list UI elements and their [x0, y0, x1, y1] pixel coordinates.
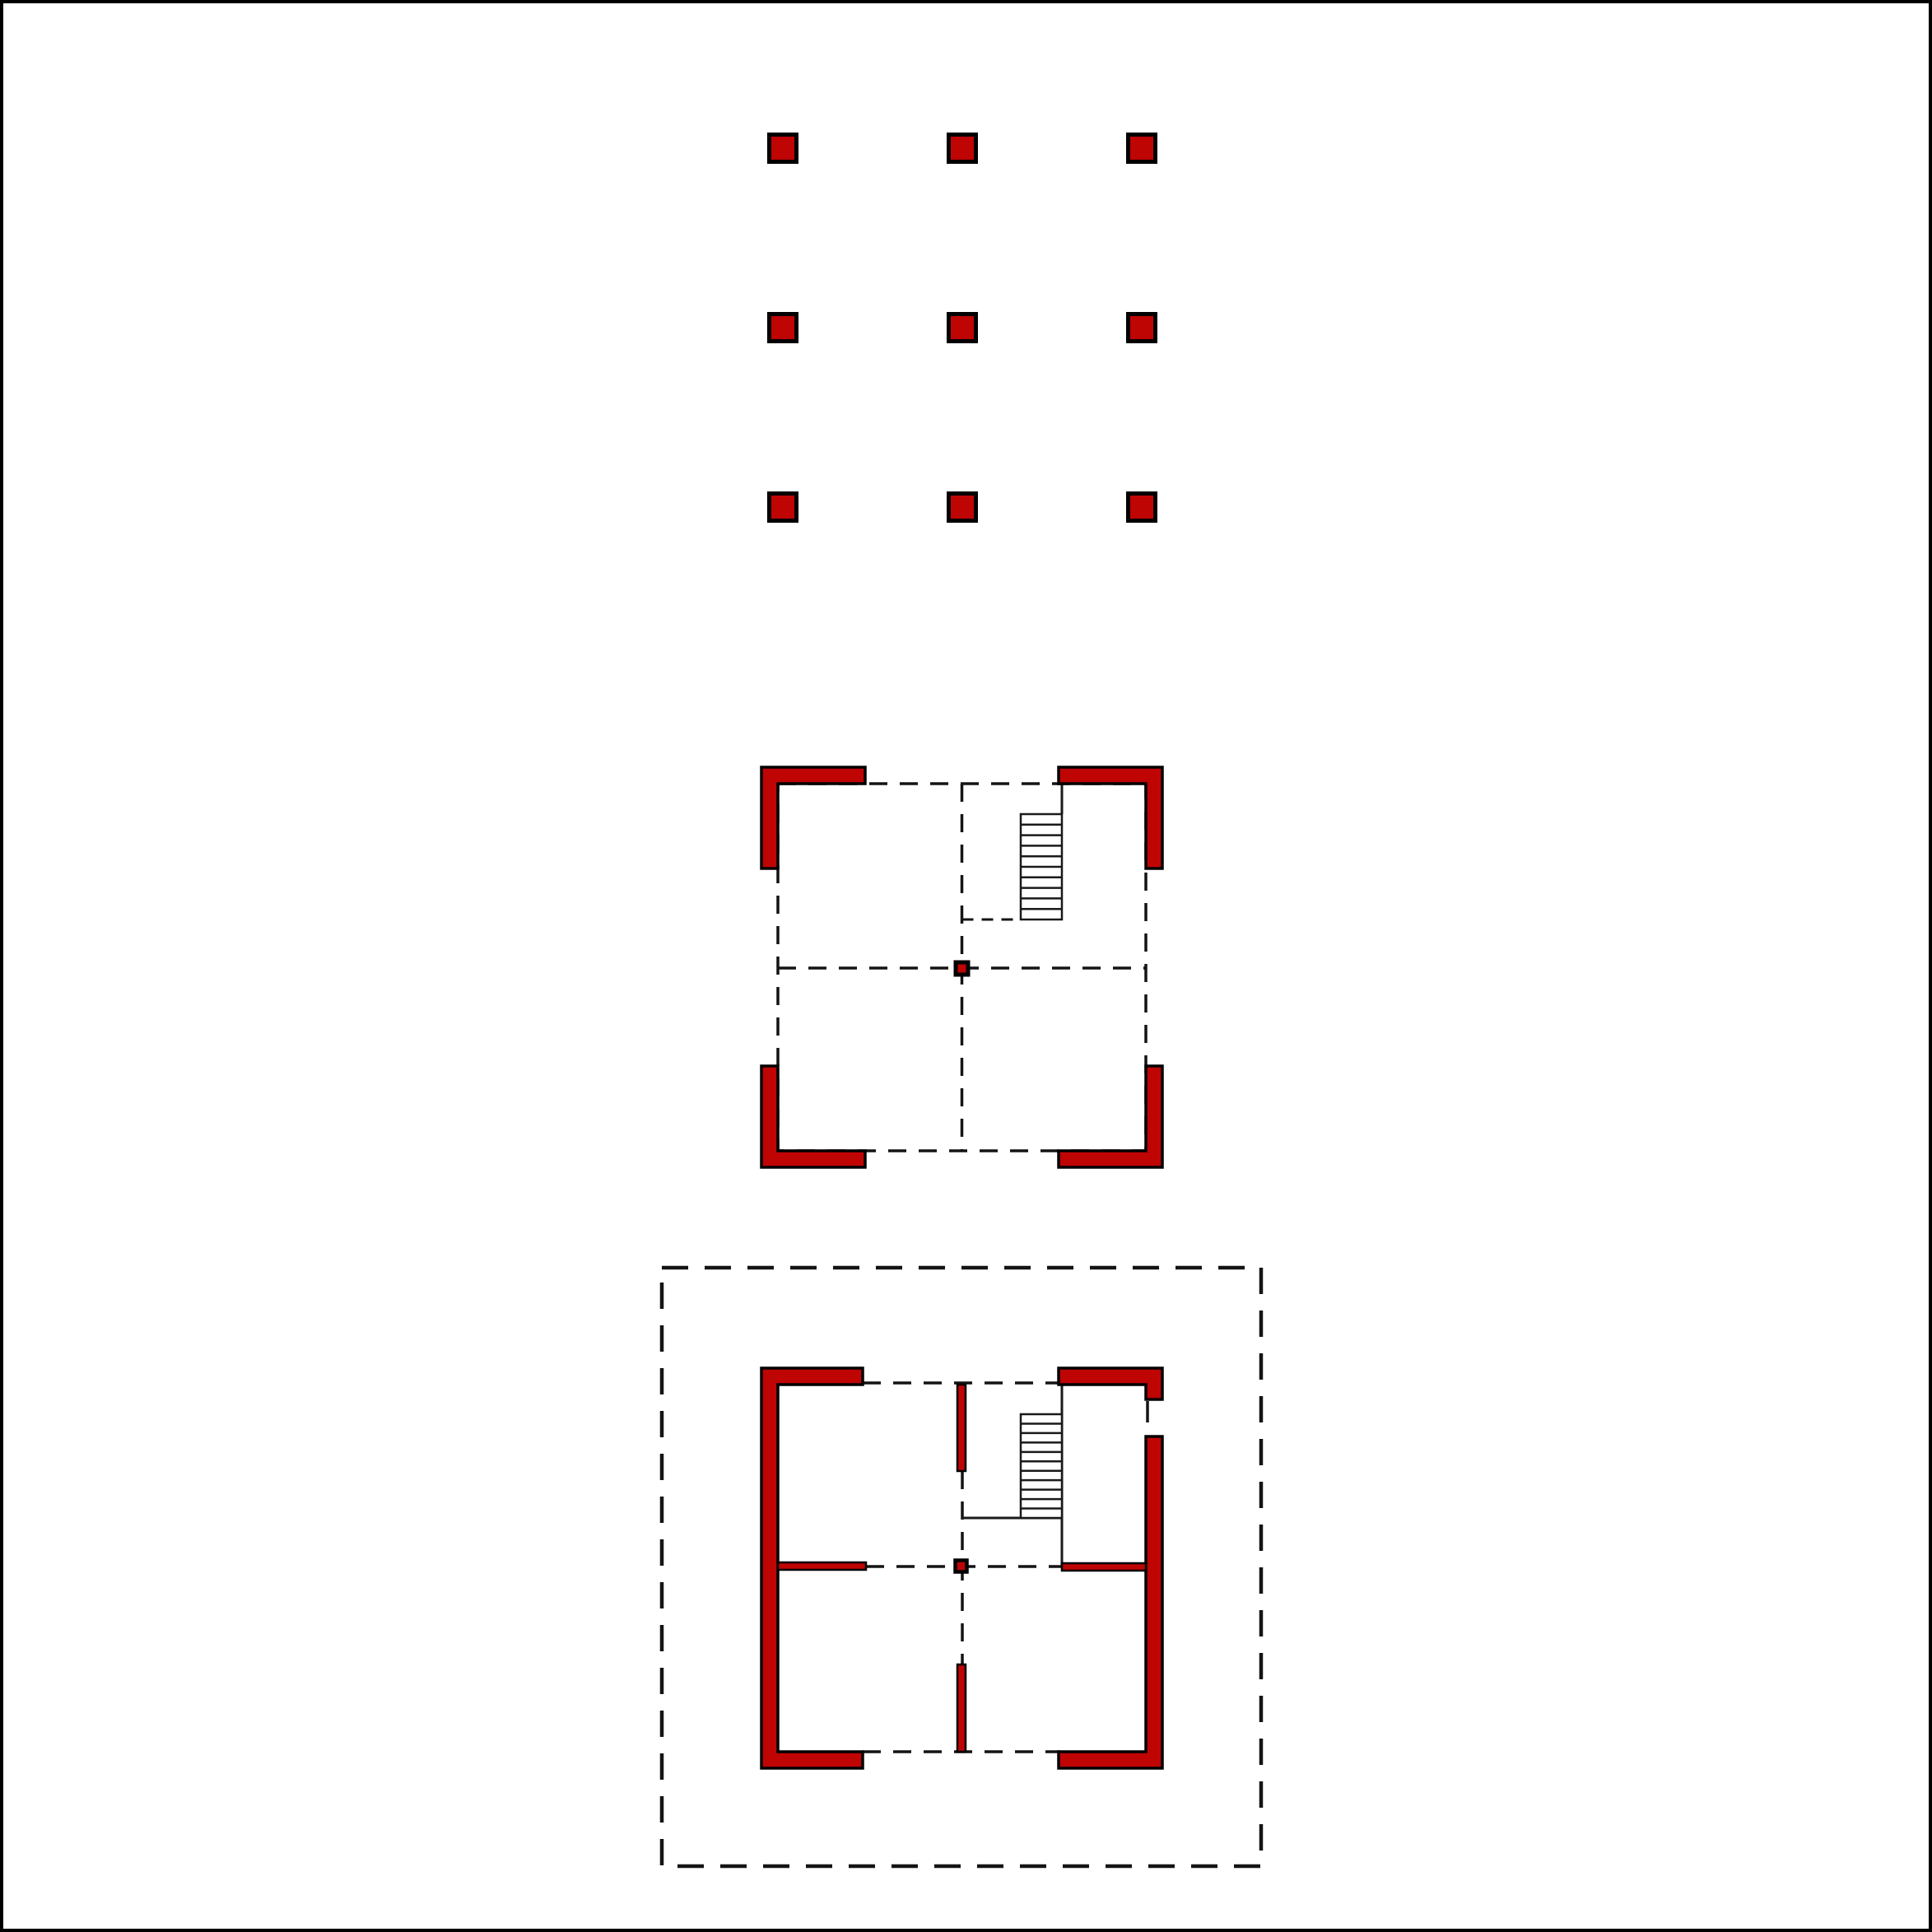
column-grid [770, 135, 1156, 521]
ground-staircase-outline [1021, 1414, 1062, 1518]
ground-floor-plan [662, 1268, 1261, 1866]
ground-partition-mid-right [1062, 1563, 1146, 1571]
upper-corner-wall-bottom-left [761, 1066, 865, 1167]
ground-partition-mid-left [778, 1562, 866, 1570]
grid-column-square [949, 135, 976, 162]
upper-corner-wall-top-left [761, 767, 865, 868]
ground-wall-right-and-bottom [1059, 1436, 1162, 1768]
ground-partition-bottom-center [957, 1664, 966, 1752]
ground-wall-top-right [1059, 1368, 1162, 1399]
ground-center-column [956, 1561, 967, 1572]
architectural-diagram [0, 0, 1932, 1932]
ground-staircase [1021, 1414, 1062, 1518]
grid-column-square [770, 135, 797, 162]
grid-column-square [1129, 494, 1156, 521]
upper-center-column [956, 962, 968, 975]
upper-corner-wall-bottom-right [1059, 1066, 1162, 1167]
upper-floor-plan [761, 767, 1162, 1167]
grid-column-square [770, 314, 797, 342]
upper-staircase [1021, 814, 1062, 919]
ground-partition-top-center [957, 1385, 966, 1471]
grid-column-square [1129, 314, 1156, 342]
grid-column-square [1129, 135, 1156, 162]
upper-corner-wall-top-right [1059, 767, 1162, 868]
grid-column-square [949, 494, 976, 521]
architectural-drawing-page [0, 0, 1932, 1932]
grid-column-square [770, 494, 797, 521]
grid-column-square [949, 314, 976, 342]
